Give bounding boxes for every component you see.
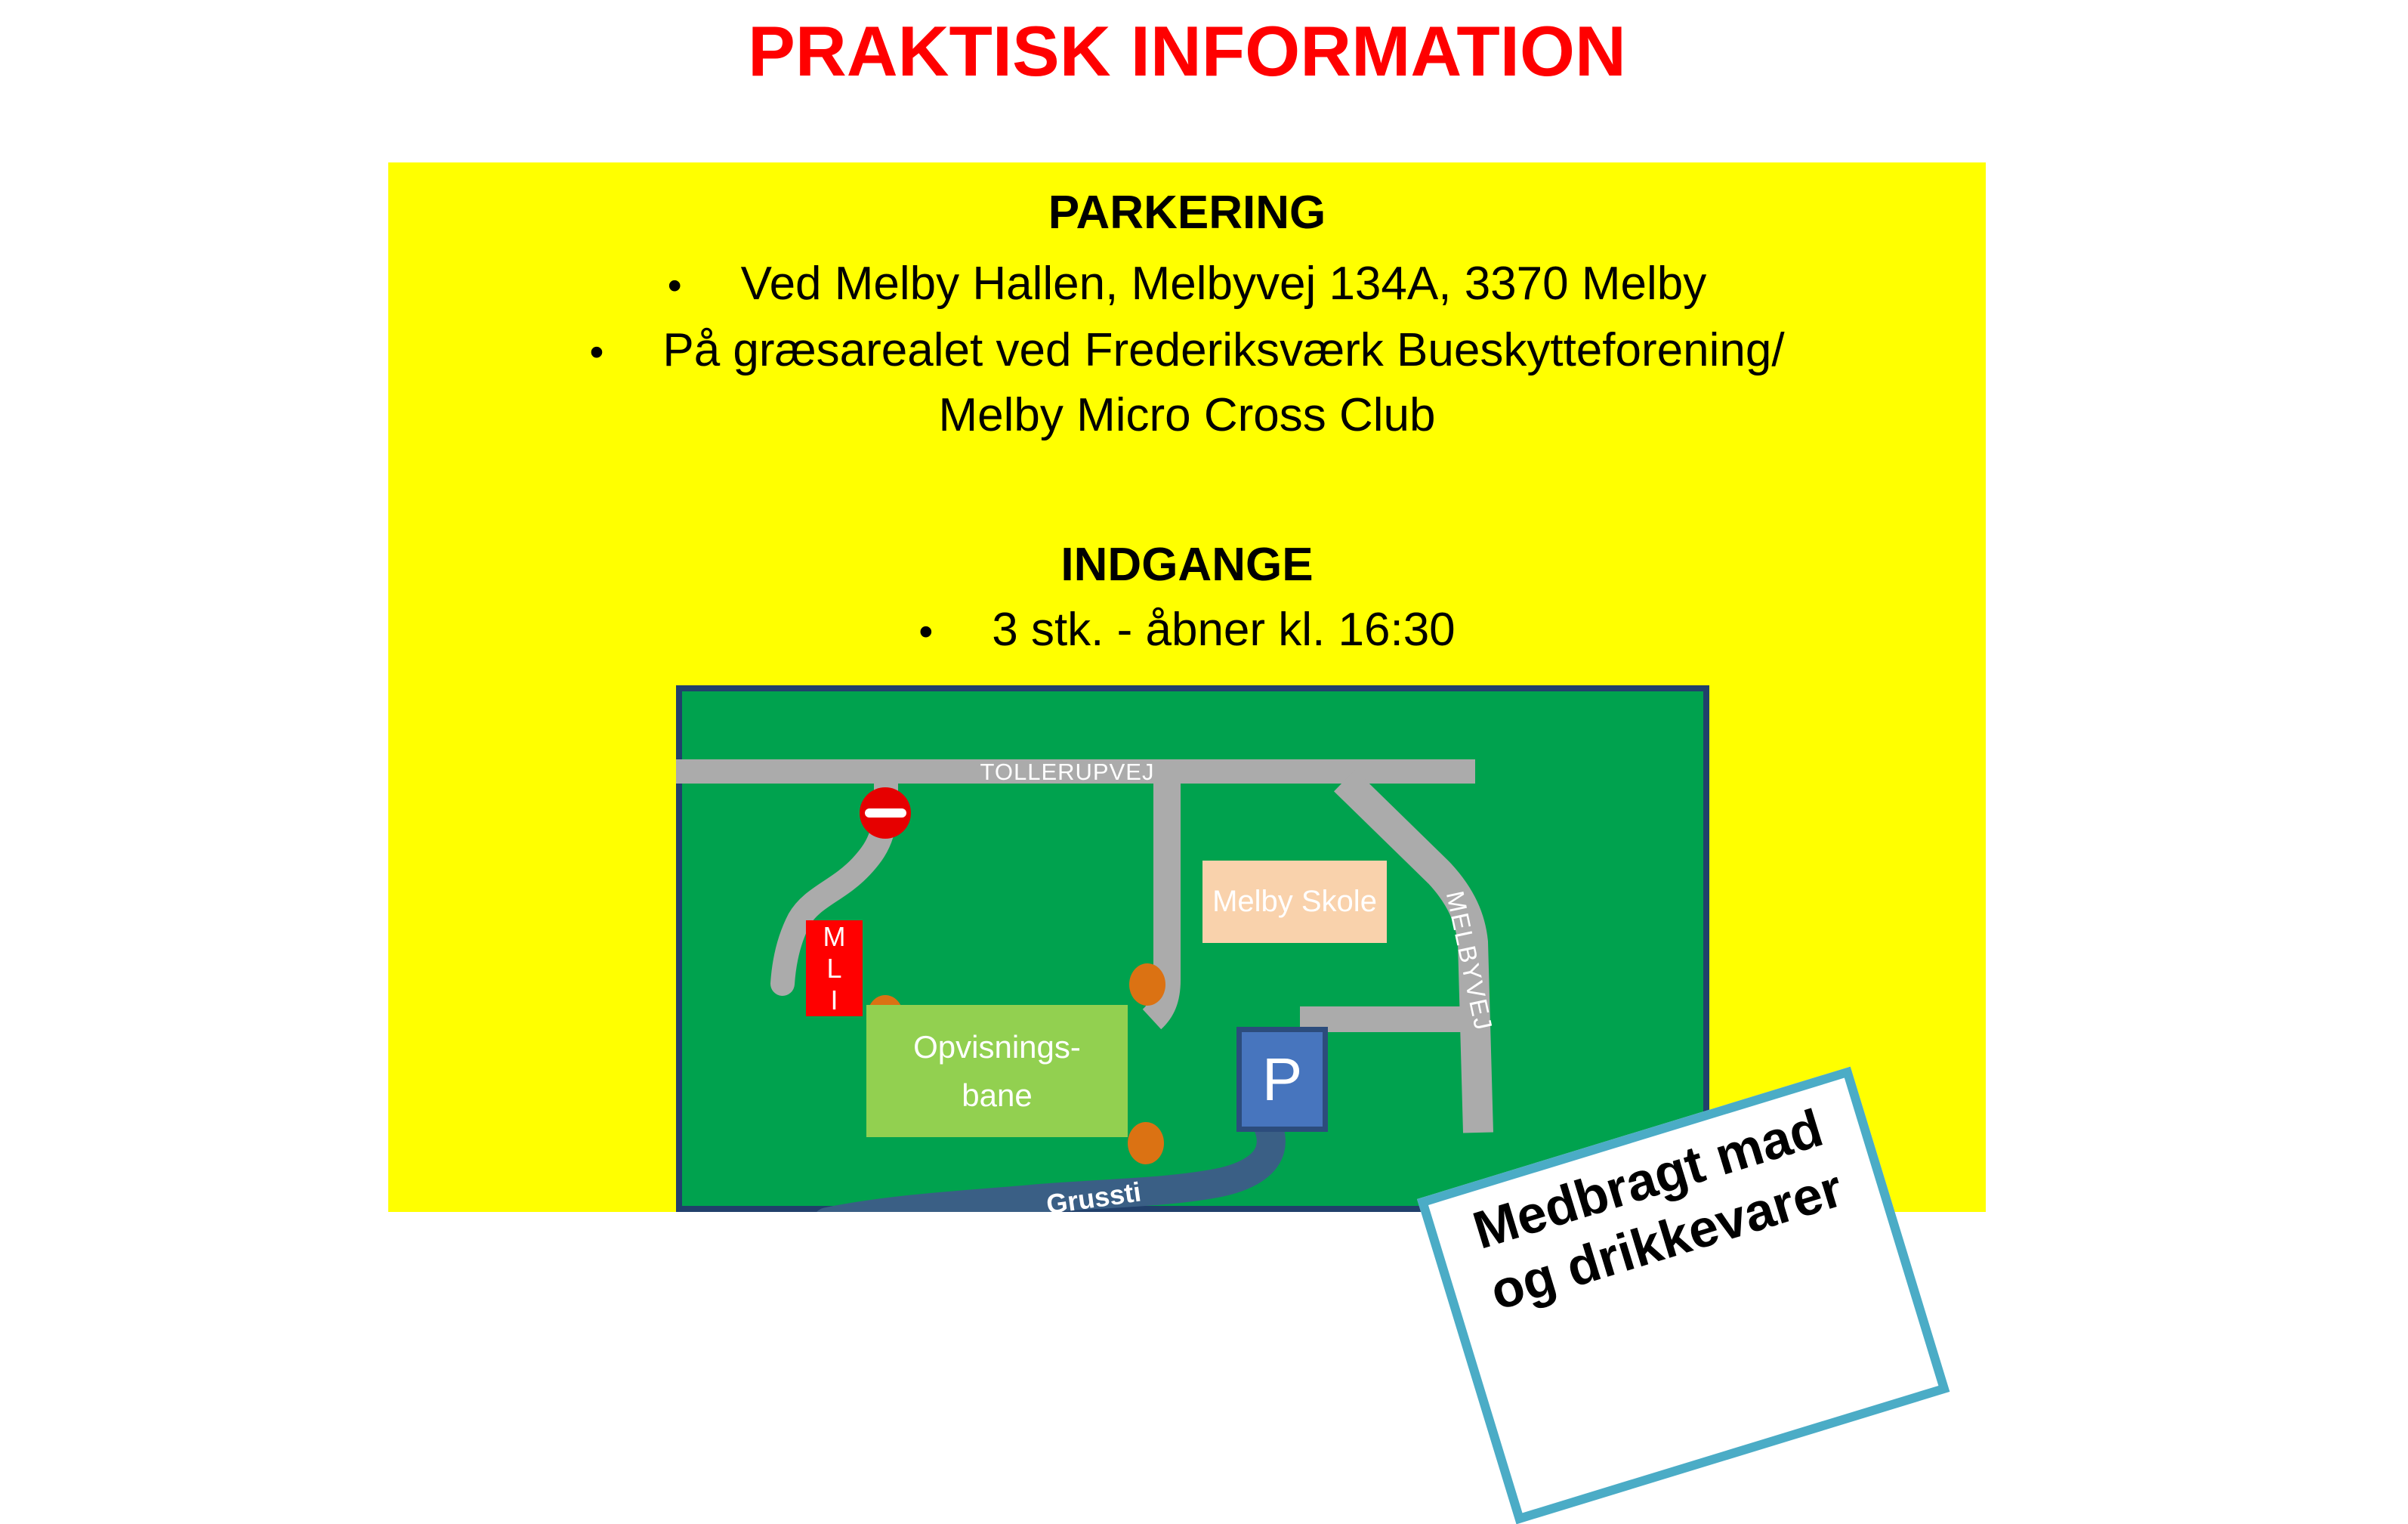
- mli-letter-m: M: [823, 921, 846, 953]
- indgange-bullet-1-text: 3 stk. - åbner kl. 16:30: [992, 603, 1455, 657]
- site-map: TOLLERUPVEJ MELBYVEJ Melby Skole M L I O…: [676, 685, 1709, 1212]
- mli-letter-i: I: [830, 985, 838, 1016]
- parkering-heading: PARKERING: [388, 186, 1986, 240]
- entrance-dot-icon: [1129, 963, 1165, 1006]
- bullet-icon: •: [918, 608, 933, 655]
- building-mli: M L I: [806, 920, 863, 1016]
- parkering-bullet-2-text: På græsarealet ved Frederiksværk Bueskyt…: [662, 323, 1784, 377]
- show-arena-label-line1: Opvisnings-: [913, 1023, 1081, 1071]
- parkering-bullet-1-text: Ved Melby Hallen, Melbyvej 134A, 3370 Me…: [741, 257, 1707, 311]
- show-arena: Opvisnings- bane: [866, 1005, 1128, 1137]
- bullet-icon: •: [668, 262, 682, 309]
- show-arena-label-line2: bane: [962, 1071, 1032, 1120]
- parkering-bullet-1: • Ved Melby Hallen, Melbyvej 134A, 3370 …: [388, 257, 1986, 311]
- parkering-bullet-2: • På græsarealet ved Frederiksværk Buesk…: [388, 323, 1986, 377]
- indgange-heading: INDGANGE: [388, 538, 1986, 592]
- page-title: PRAKTISK INFORMATION: [388, 11, 1986, 92]
- building-melby-skole: Melby Skole: [1202, 861, 1387, 943]
- mli-letter-l: L: [826, 953, 841, 985]
- building-melby-skole-label: Melby Skole: [1212, 885, 1377, 919]
- parking-marker: P: [1236, 1027, 1328, 1132]
- no-entry-icon: [860, 787, 911, 839]
- parking-marker-label: P: [1262, 1045, 1302, 1114]
- bullet-icon: •: [589, 329, 604, 376]
- parkering-bullet-2-continuation: Melby Micro Cross Club: [388, 388, 1986, 442]
- indgange-bullet-1: • 3 stk. - åbner kl. 16:30: [388, 603, 1986, 657]
- road-label-tollerupvej: TOLLERUPVEJ: [916, 759, 1218, 786]
- entrance-dot-icon: [1128, 1122, 1164, 1164]
